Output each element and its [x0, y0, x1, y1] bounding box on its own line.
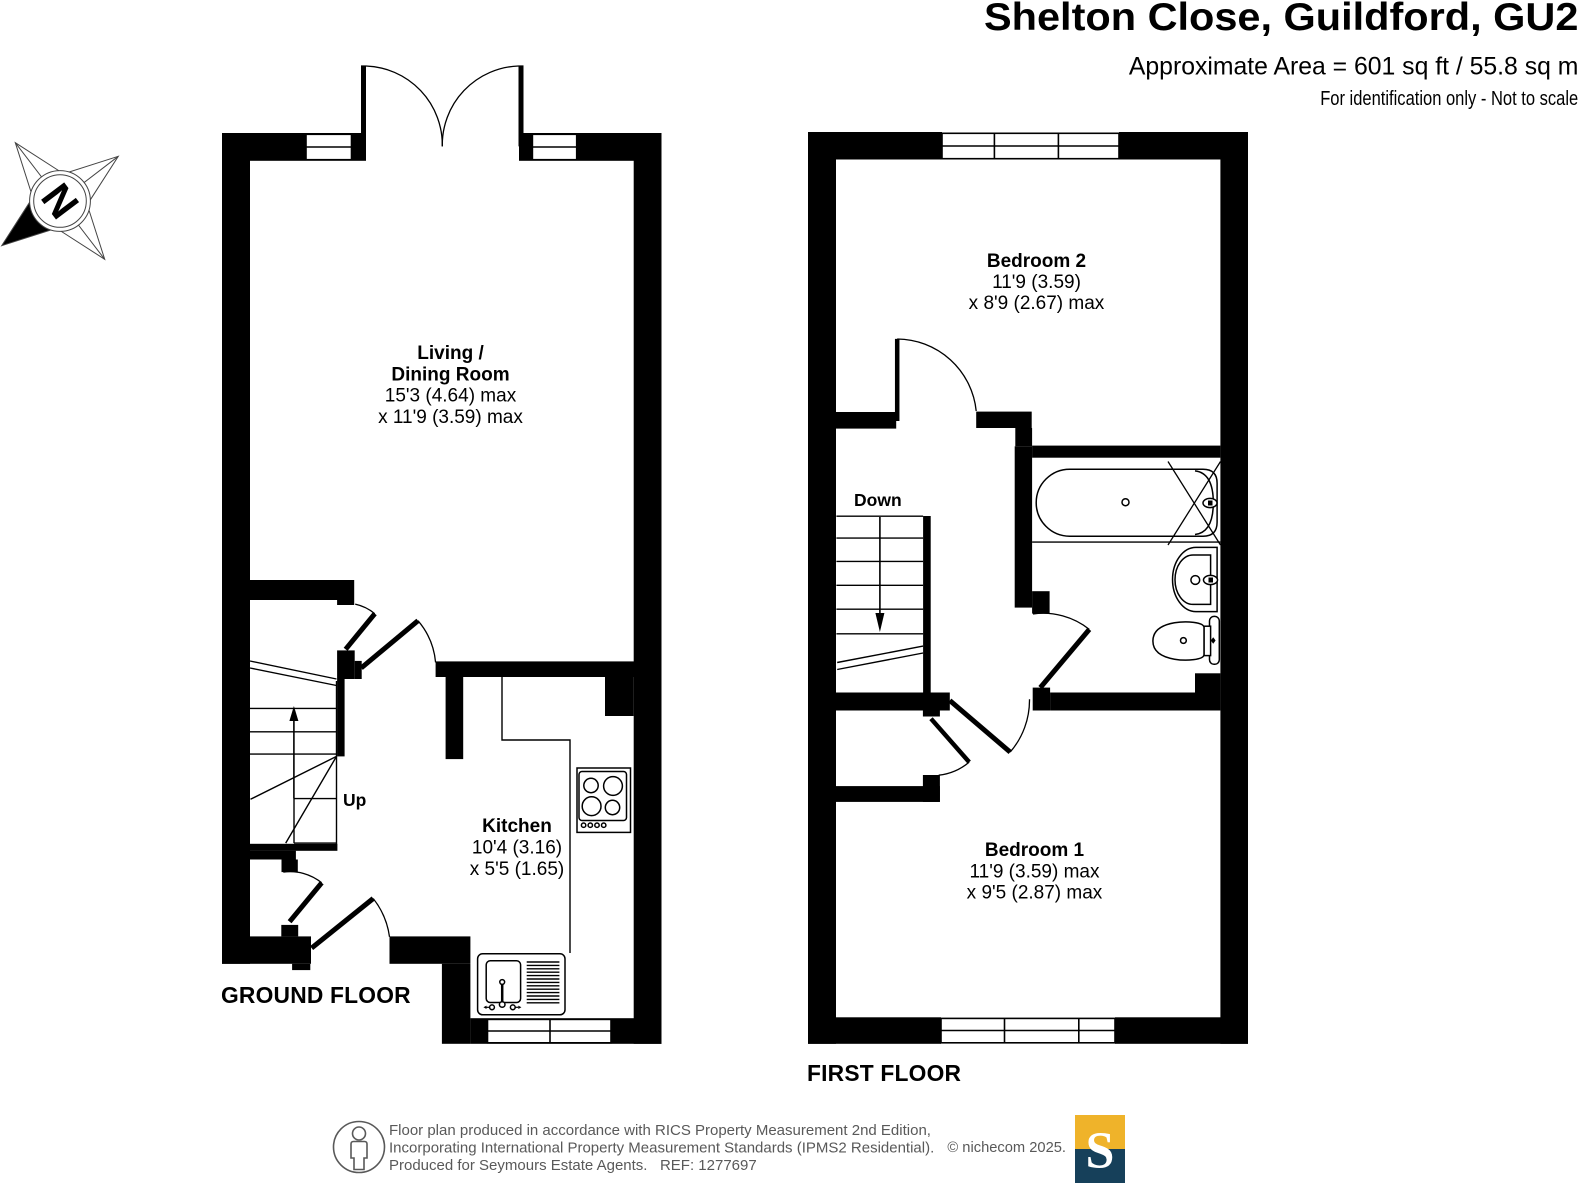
svg-text:Bedroom 2: Bedroom 2	[987, 251, 1086, 272]
svg-text:© nichecom 2025.: © nichecom 2025.	[947, 1140, 1066, 1156]
svg-text:Up: Up	[343, 790, 366, 810]
svg-text:15'3 (4.64) max: 15'3 (4.64) max	[385, 386, 517, 407]
svg-text:x 5'5 (1.65): x 5'5 (1.65)	[470, 859, 564, 880]
svg-text:11'9 (3.59) max: 11'9 (3.59) max	[969, 861, 1100, 882]
svg-text:Approximate Area = 601 sq ft /: Approximate Area = 601 sq ft / 55.8 sq m	[1129, 54, 1579, 81]
svg-text:Floor plan produced in accorda: Floor plan produced in accordance with R…	[389, 1122, 931, 1139]
svg-text:Living /: Living /	[417, 343, 484, 364]
svg-text:FIRST FLOOR: FIRST FLOOR	[807, 1060, 961, 1086]
svg-text:Produced for Seymours Estate A: Produced for Seymours Estate Agents. REF…	[389, 1157, 757, 1174]
svg-text:x 8'9 (2.67) max: x 8'9 (2.67) max	[969, 293, 1105, 314]
svg-text:11'9 (3.59): 11'9 (3.59)	[992, 272, 1081, 293]
svg-text:For identification only - Not: For identification only - Not to scale	[1320, 88, 1578, 110]
svg-text:x 11'9 (3.59) max: x 11'9 (3.59) max	[378, 407, 523, 428]
svg-text:S: S	[1086, 1123, 1115, 1180]
svg-text:x 9'5 (2.87) max: x 9'5 (2.87) max	[967, 883, 1103, 904]
svg-text:Kitchen: Kitchen	[482, 816, 552, 837]
svg-text:Dining Room: Dining Room	[391, 364, 509, 385]
svg-text:Shelton Close, Guildford, GU2: Shelton Close, Guildford, GU2	[984, 0, 1578, 39]
svg-text:Incorporating International Pr: Incorporating International Property Mea…	[389, 1140, 934, 1157]
svg-text:Down: Down	[854, 490, 902, 510]
svg-text:GROUND FLOOR: GROUND FLOOR	[221, 982, 411, 1008]
svg-text:Bedroom 1: Bedroom 1	[985, 840, 1085, 861]
svg-text:10'4 (3.16): 10'4 (3.16)	[472, 838, 562, 859]
